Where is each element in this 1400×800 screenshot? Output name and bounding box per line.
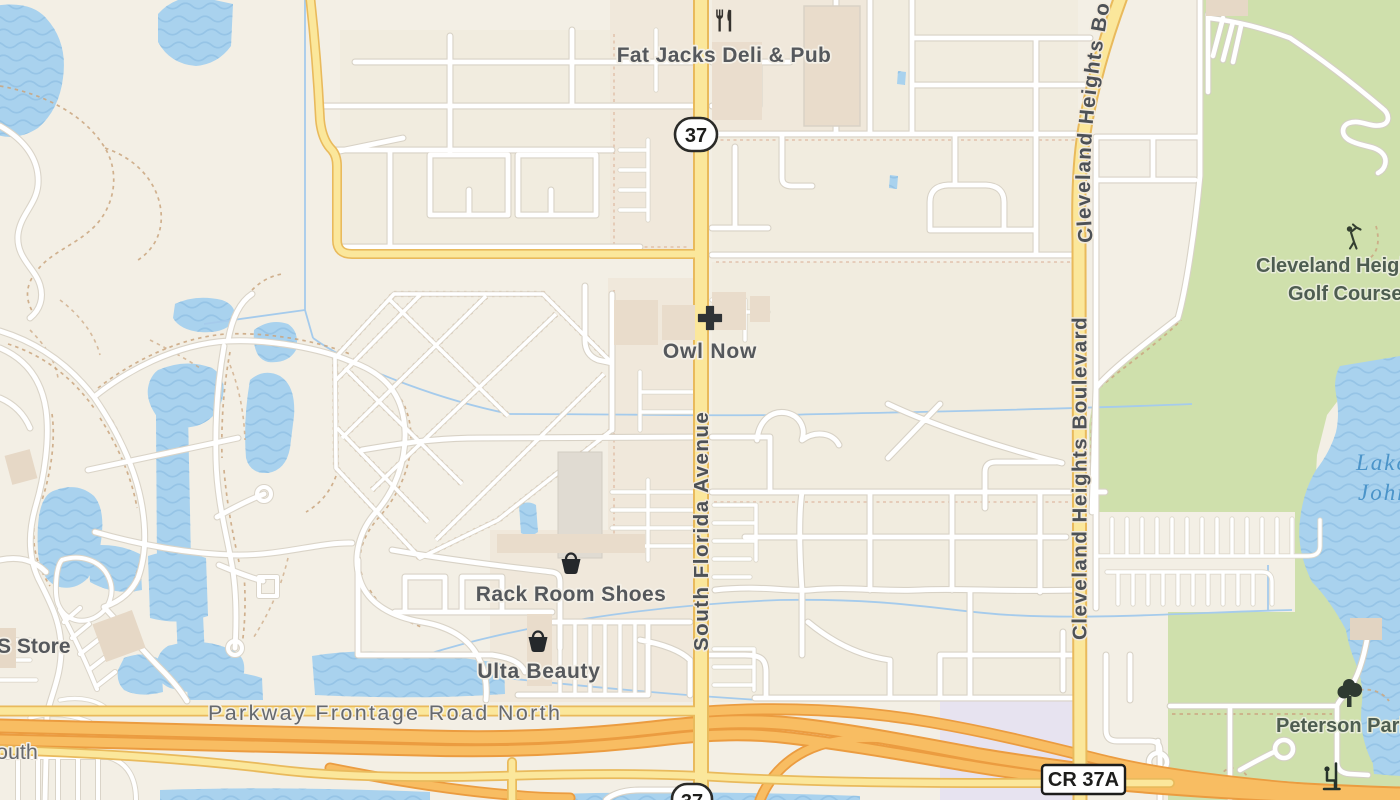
svg-text:Cleveland Heights: Cleveland Heights <box>1256 255 1400 277</box>
svg-text:South Florida Avenue: South Florida Avenue <box>690 411 713 651</box>
svg-text:Rack Room Shoes: Rack Room Shoes <box>476 583 666 606</box>
svg-text:Ulta Beauty: Ulta Beauty <box>477 660 600 683</box>
svg-text:Golf Course: Golf Course <box>1288 283 1400 305</box>
svg-text:CR 37A: CR 37A <box>1048 769 1119 791</box>
svg-text:S Store: S Store <box>0 635 71 658</box>
svg-text:Peterson Park: Peterson Park <box>1276 715 1400 737</box>
svg-text:Cleveland Heights Boulevard: Cleveland Heights Boulevard <box>1069 316 1092 640</box>
svg-text:John: John <box>1358 480 1400 505</box>
svg-text:37: 37 <box>681 791 703 800</box>
svg-text:outh: outh <box>0 740 38 764</box>
svg-text:Owl Now: Owl Now <box>663 340 757 363</box>
svg-text:37: 37 <box>685 125 707 147</box>
svg-text:Parkway Frontage Road North: Parkway Frontage Road North <box>208 701 560 725</box>
svg-text:Fat Jacks Deli & Pub: Fat Jacks Deli & Pub <box>617 44 832 67</box>
svg-text:Lake: Lake <box>1355 450 1400 475</box>
